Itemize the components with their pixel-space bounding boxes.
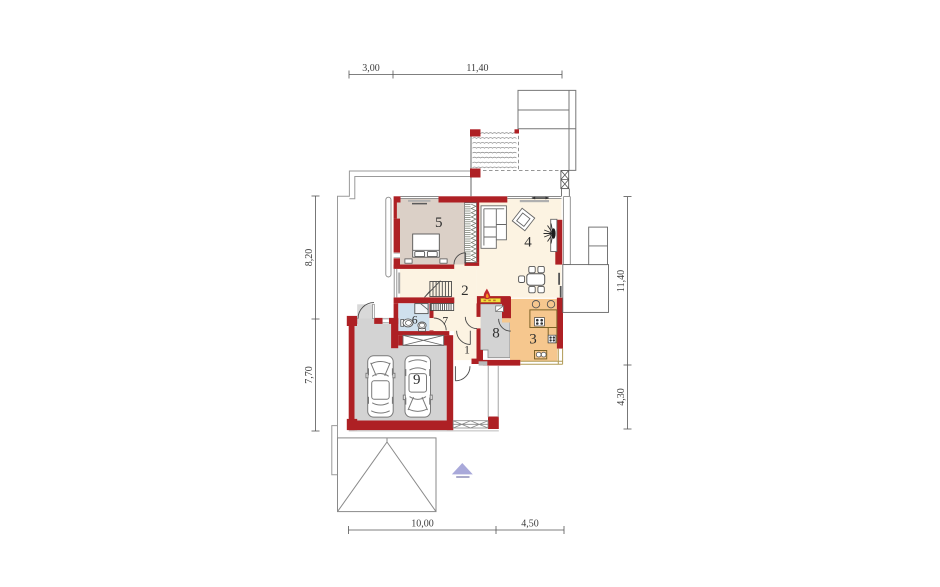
svg-text:1: 1 [464,345,470,357]
svg-text:10,00: 10,00 [411,519,434,530]
svg-text:4: 4 [524,235,532,251]
svg-text:2: 2 [461,283,469,299]
svg-text:9: 9 [413,372,421,388]
svg-text:5: 5 [435,215,443,231]
svg-text:11,40: 11,40 [616,270,627,292]
svg-text:8: 8 [492,326,500,342]
svg-text:4,50: 4,50 [521,519,539,530]
svg-text:7,70: 7,70 [304,366,315,384]
svg-text:11,40: 11,40 [466,63,488,74]
svg-text:4,30: 4,30 [616,388,627,406]
svg-text:7: 7 [442,316,448,328]
svg-text:3: 3 [529,332,537,348]
svg-text:8,20: 8,20 [304,249,315,267]
svg-text:6: 6 [412,315,418,327]
svg-text:3,00: 3,00 [362,63,380,74]
